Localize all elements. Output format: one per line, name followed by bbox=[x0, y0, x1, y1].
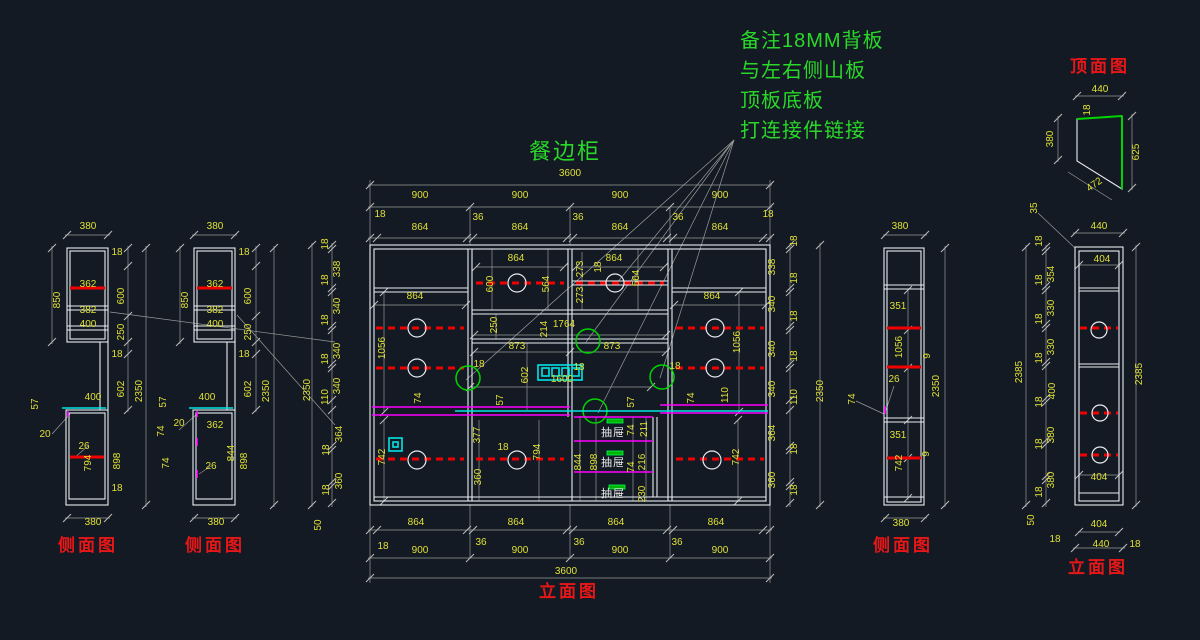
dim-line bbox=[598, 140, 734, 413]
dim-label: 273 bbox=[575, 286, 586, 303]
dim-label: 404 bbox=[1091, 519, 1108, 530]
dim-label: 2350 bbox=[302, 378, 313, 401]
dim-label: 18 bbox=[1034, 313, 1045, 325]
dim-label: 18 bbox=[320, 274, 331, 286]
dim-label: 794 bbox=[83, 454, 94, 471]
dim-label: 864 bbox=[512, 222, 529, 233]
dim-label: 18 bbox=[1034, 396, 1045, 408]
dim-label: 110 bbox=[320, 389, 331, 405]
dim-label: 74 bbox=[686, 392, 697, 404]
dim-label: 3600 bbox=[555, 566, 578, 577]
dim-label: 35 bbox=[1029, 202, 1040, 214]
dim-label: 18 bbox=[789, 484, 800, 496]
dim-label: 18 bbox=[497, 442, 509, 453]
dim-label: 900 bbox=[712, 190, 729, 201]
dim-label: 36 bbox=[472, 212, 484, 223]
dim-label: 18 bbox=[1082, 104, 1093, 116]
dim-label: 380 bbox=[893, 518, 910, 529]
dim-label: 850 bbox=[52, 291, 63, 308]
dim-label: 440 bbox=[1092, 84, 1109, 95]
dim-label: 74 bbox=[156, 425, 167, 437]
dim-label: 330 bbox=[1046, 299, 1057, 316]
dim-label: 214 bbox=[539, 320, 550, 337]
dim-label: 57 bbox=[158, 396, 169, 408]
view-label: 侧面图 bbox=[58, 535, 118, 555]
dim-label: 864 bbox=[508, 517, 525, 528]
right-elevation bbox=[1075, 247, 1123, 505]
view-label: 立面图 bbox=[539, 581, 599, 601]
dim-label: 742 bbox=[894, 454, 905, 471]
dim-label: 18 bbox=[789, 235, 800, 247]
dim-label: 900 bbox=[412, 190, 429, 201]
dim-label: 362 bbox=[80, 279, 97, 290]
dim-label: 18 bbox=[669, 361, 681, 372]
dim-label: 18 bbox=[111, 349, 123, 360]
dim-line bbox=[660, 140, 734, 378]
dim-label: 380 bbox=[80, 221, 97, 232]
dim-label: 18 bbox=[762, 209, 774, 220]
dim-label: 74 bbox=[626, 424, 637, 436]
dim-label: 602 bbox=[520, 366, 531, 383]
view-label: 立面图 bbox=[1068, 557, 1128, 577]
dim-label: 216 bbox=[637, 453, 648, 470]
dim-label: 57 bbox=[495, 394, 506, 406]
dim-label: 1764 bbox=[553, 319, 576, 330]
dim-label: 380 bbox=[85, 517, 102, 528]
dim-line bbox=[856, 401, 884, 414]
dim-label: 18 bbox=[321, 484, 332, 496]
dim-label: 362 bbox=[207, 420, 224, 431]
dim-label: 898 bbox=[112, 452, 123, 469]
dim-label: 382 bbox=[80, 305, 97, 316]
dim-label: 742 bbox=[377, 448, 388, 465]
dim-label: 18 bbox=[789, 272, 800, 284]
dim-label: 844 bbox=[226, 444, 237, 461]
dim-label: 873 bbox=[509, 341, 526, 352]
dim-label: 18 bbox=[1049, 534, 1061, 545]
dim-label: 250 bbox=[489, 316, 500, 333]
dim-label: 351 bbox=[890, 301, 907, 312]
dim-label: 440 bbox=[1093, 539, 1110, 550]
dim-label: 36 bbox=[475, 537, 487, 548]
dim-label: 900 bbox=[412, 545, 429, 556]
dim-label: 50 bbox=[1026, 514, 1037, 526]
dim-label: 900 bbox=[712, 545, 729, 556]
dim-label: 18 bbox=[593, 261, 604, 273]
dim-line bbox=[586, 140, 734, 342]
dim-label: 18 bbox=[238, 349, 250, 360]
dim-label: 400 bbox=[80, 319, 97, 330]
dim-label: 18 bbox=[473, 359, 485, 370]
dim-label: 864 bbox=[612, 222, 629, 233]
dim-label: 400 bbox=[85, 392, 102, 403]
note-line: 顶板底板 bbox=[740, 86, 884, 116]
dim-label: 18 bbox=[573, 362, 585, 373]
dim-label: 3600 bbox=[559, 168, 582, 179]
dim-label: 18 bbox=[320, 353, 331, 365]
dim-label: 864 bbox=[408, 517, 425, 528]
dim-label: 36 bbox=[572, 212, 584, 223]
dim-label: 564 bbox=[631, 269, 642, 286]
dim-label: 230 bbox=[637, 485, 648, 502]
dim-label: 864 bbox=[606, 253, 623, 264]
shelf-pin-circles bbox=[408, 274, 1108, 469]
view-label: 顶面图 bbox=[1070, 57, 1130, 76]
drawing-title: 餐边柜 bbox=[505, 134, 625, 166]
note-line: 打连接件链接 bbox=[740, 116, 884, 146]
dim-label: 26 bbox=[78, 441, 90, 452]
dim-label: 900 bbox=[512, 545, 529, 556]
dim-label: 600 bbox=[485, 275, 496, 292]
dim-label: 364 bbox=[767, 424, 778, 441]
dim-label: 18 bbox=[789, 350, 800, 362]
dim-label: 900 bbox=[512, 190, 529, 201]
dim-label: 211 bbox=[639, 421, 650, 437]
dim-label: 380 bbox=[892, 221, 909, 232]
dim-label: 864 bbox=[712, 222, 729, 233]
dim-label: 380 bbox=[208, 517, 225, 528]
dim-label: 36 bbox=[671, 537, 683, 548]
dim-label: 18 bbox=[1034, 438, 1045, 450]
dim-label: 340 bbox=[767, 295, 778, 312]
dim-label: 2385 bbox=[1014, 360, 1025, 383]
dim-label: 864 bbox=[608, 517, 625, 528]
dim-label: 404 bbox=[1091, 472, 1108, 483]
dim-label: 360 bbox=[334, 472, 345, 489]
cad-drawing-canvas: 3801885060036238240025018602235040057202… bbox=[0, 0, 1200, 640]
dim-label: 602 bbox=[116, 380, 127, 397]
dim-label: 18 bbox=[789, 310, 800, 322]
dim-label: 18 bbox=[789, 443, 800, 455]
dim-label: 2385 bbox=[1134, 362, 1145, 385]
dim-label: 362 bbox=[207, 279, 224, 290]
outlet-box bbox=[389, 438, 402, 451]
dim-label: 844 bbox=[573, 453, 584, 470]
dim-label: 873 bbox=[604, 341, 621, 352]
dim-label: 18 bbox=[1129, 539, 1141, 550]
dim-label: 26 bbox=[205, 461, 217, 472]
dim-label: 864 bbox=[508, 253, 525, 264]
dim-label: 380 bbox=[1046, 426, 1057, 443]
dim-label: 602 bbox=[243, 380, 254, 397]
cabinet-geometry bbox=[66, 116, 1123, 505]
dim-label: 794 bbox=[532, 443, 543, 460]
dim-label: 273 bbox=[575, 260, 586, 277]
note-line: 与左右侧山板 bbox=[740, 56, 884, 86]
dim-label: 2350 bbox=[931, 374, 942, 397]
dim-label: 18 bbox=[111, 483, 123, 494]
dim-label: 18 bbox=[374, 209, 386, 220]
dim-label: 2350 bbox=[815, 379, 826, 402]
dim-label: 625 bbox=[1131, 143, 1142, 160]
dim-label: 20 bbox=[39, 429, 51, 440]
drawer-label: 抽屉 bbox=[601, 455, 625, 469]
dim-label: 110 bbox=[720, 387, 731, 403]
dim-label: 340 bbox=[767, 380, 778, 397]
dim-label: 330 bbox=[1046, 338, 1057, 355]
dim-label: 18 bbox=[111, 247, 123, 258]
dim-label: 1056 bbox=[894, 335, 905, 358]
dim-label: 340 bbox=[332, 342, 343, 359]
dim-label: 340 bbox=[767, 340, 778, 357]
dim-label: 57 bbox=[30, 398, 41, 410]
dim-label: 18 bbox=[1034, 274, 1045, 286]
dim-label: 9 bbox=[922, 353, 933, 359]
dim-label: 600 bbox=[243, 287, 254, 304]
dim-label: 9 bbox=[921, 451, 932, 457]
dim-label: 57 bbox=[626, 396, 637, 408]
cad-workspace: 3801885060036238240025018602235040057202… bbox=[0, 0, 1200, 640]
dim-label: 110 bbox=[789, 389, 800, 405]
dim-label: 18 bbox=[321, 444, 332, 456]
dim-label: 18 bbox=[1034, 235, 1045, 247]
dim-label: 850 bbox=[180, 291, 191, 308]
dim-label: 377 bbox=[472, 426, 483, 443]
dim-label: 900 bbox=[612, 545, 629, 556]
dim-label: 1056 bbox=[377, 336, 388, 359]
dim-label: 74 bbox=[413, 392, 424, 404]
dim-label: 250 bbox=[116, 323, 127, 340]
dim-label: 18 bbox=[377, 541, 389, 552]
dim-label: 50 bbox=[313, 519, 324, 531]
dim-label: 400 bbox=[1047, 382, 1058, 399]
dim-label: 864 bbox=[407, 291, 424, 302]
adjustable-shelf-dashes bbox=[376, 283, 1118, 459]
dim-label: 400 bbox=[207, 319, 224, 330]
dim-label: 400 bbox=[199, 392, 216, 403]
dim-label: 898 bbox=[239, 452, 250, 469]
dim-label: 742 bbox=[731, 448, 742, 465]
dim-label: 338 bbox=[767, 258, 778, 275]
view-label: 侧面图 bbox=[873, 535, 933, 555]
dim-label: 864 bbox=[704, 291, 721, 302]
dim-label: 440 bbox=[1091, 221, 1108, 232]
dim-label: 26 bbox=[888, 374, 900, 385]
dim-label: 18 bbox=[320, 238, 331, 250]
dim-label: 380 bbox=[207, 221, 224, 232]
dim-label: 380 bbox=[1046, 471, 1057, 488]
dim-label: 864 bbox=[708, 517, 725, 528]
dim-label: 18 bbox=[238, 247, 250, 258]
dim-label: 18 bbox=[320, 314, 331, 326]
dim-label: 1056 bbox=[732, 330, 743, 353]
dim-label: 340 bbox=[332, 297, 343, 314]
dim-label: 382 bbox=[207, 305, 224, 316]
dim-label: 472 bbox=[1085, 175, 1105, 194]
dim-label: 250 bbox=[243, 323, 254, 340]
dim-label: 898 bbox=[589, 453, 600, 470]
dim-label: 2350 bbox=[261, 379, 272, 402]
dim-label: 36 bbox=[573, 537, 585, 548]
dim-label: 74 bbox=[626, 461, 637, 473]
dim-label: 360 bbox=[473, 468, 484, 485]
dim-label: 1600 bbox=[551, 374, 574, 385]
view-label: 侧面图 bbox=[185, 535, 245, 555]
drawer-label: 抽屉 bbox=[601, 425, 625, 439]
dim-label: 2350 bbox=[134, 379, 145, 402]
dim-label: 900 bbox=[612, 190, 629, 201]
dim-label: 380 bbox=[1045, 130, 1056, 147]
note-line: 备注18MM背板 bbox=[740, 26, 884, 56]
dim-label: 18 bbox=[1034, 352, 1045, 364]
dim-label: 74 bbox=[161, 457, 172, 469]
dim-label: 351 bbox=[890, 430, 907, 441]
dim-label: 864 bbox=[412, 222, 429, 233]
dim-label: 360 bbox=[767, 471, 778, 488]
dim-label: 74 bbox=[847, 393, 858, 405]
dim-label: 338 bbox=[332, 260, 343, 277]
dim-label: 564 bbox=[541, 275, 552, 292]
dim-label: 36 bbox=[672, 212, 684, 223]
drawer-label: 抽屉 bbox=[601, 486, 625, 500]
dim-label: 404 bbox=[1094, 254, 1111, 265]
dim-label: 354 bbox=[1046, 265, 1057, 282]
dim-label: 20 bbox=[173, 418, 185, 429]
dim-label: 600 bbox=[116, 287, 127, 304]
dim-label: 18 bbox=[1034, 486, 1045, 498]
dim-label: 340 bbox=[332, 377, 343, 394]
annotation-notes: 备注18MM背板 与左右侧山板 顶板底板 打连接件链接 bbox=[740, 26, 884, 146]
dim-label: 364 bbox=[334, 425, 345, 442]
